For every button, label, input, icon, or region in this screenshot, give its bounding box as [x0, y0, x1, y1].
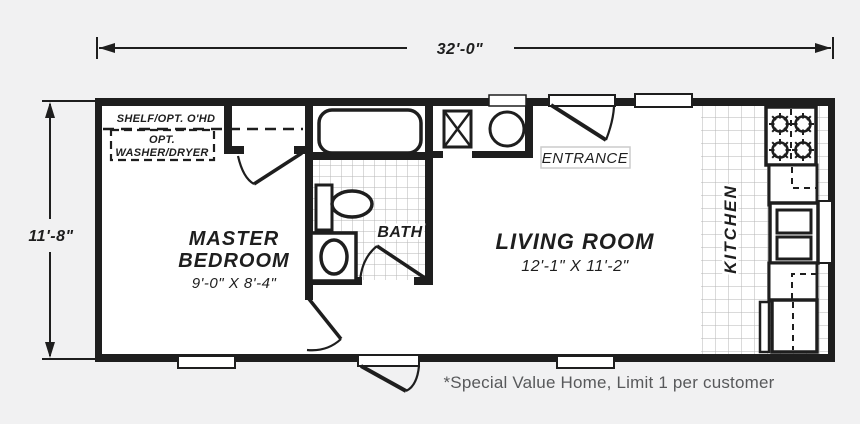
base-cabinet — [772, 300, 817, 352]
living-room-size: 12'-1" X 11'-2" — [521, 258, 629, 275]
appliance-side-panel — [760, 302, 769, 352]
floor-plan: SHELF/OPT. O'HD OPT. WASHER/DRYER MASTER… — [0, 0, 860, 424]
dimension-height: 11'-8" — [28, 101, 95, 359]
dimension-width: 32'-0" — [97, 37, 833, 59]
wall-recess — [818, 201, 832, 263]
wall-segment — [95, 98, 835, 106]
rear-door-leaf — [361, 366, 406, 391]
toilet-bowl — [321, 240, 347, 274]
living-room-label: LIVING ROOM — [496, 229, 655, 254]
master-bedroom-size: 9'-0" X 8'-4" — [192, 275, 277, 292]
washer-dryer-label-line1: OPT. — [149, 134, 175, 146]
arrow-right-icon — [815, 43, 831, 53]
shelf-label: SHELF/OPT. O'HD — [117, 113, 216, 125]
kitchen-appliances — [760, 107, 818, 352]
wall-segment — [433, 151, 443, 158]
wall-segment — [224, 146, 244, 154]
master-bedroom-label-line2: BEDROOM — [178, 250, 290, 272]
bath-label: BATH — [377, 224, 422, 241]
washer-dryer-label-line2: WASHER/DRYER — [115, 147, 208, 159]
floor-plan-drawing: SHELF/OPT. O'HD OPT. WASHER/DRYER MASTER… — [0, 0, 860, 424]
wall-recess — [489, 95, 526, 106]
wall-segment — [525, 98, 533, 158]
rear-door-arc — [406, 366, 419, 391]
sink-bowl — [332, 191, 372, 217]
arrow-down-icon — [45, 342, 55, 358]
refrigerator-door — [777, 210, 811, 233]
water-heater-symbol — [490, 112, 524, 146]
footnote-text: *Special Value Home, Limit 1 per custome… — [443, 373, 774, 392]
arrow-left-icon — [99, 43, 115, 53]
window-symbol — [635, 94, 692, 107]
width-dimension-label: 32'-0" — [437, 41, 483, 58]
refrigerator-door — [777, 237, 811, 259]
wall-segment — [472, 151, 533, 158]
entrance-door-panel — [549, 95, 615, 106]
master-bedroom-label-line1: MASTER — [189, 228, 279, 250]
wall-segment — [425, 98, 433, 285]
kitchen-label: KITCHEN — [721, 184, 740, 274]
window-symbol — [178, 356, 235, 368]
entrance-label: ENTRANCE — [542, 150, 629, 167]
bathtub — [319, 110, 421, 153]
sink-counter — [316, 185, 332, 230]
wall-segment — [224, 98, 232, 154]
window-symbol — [557, 356, 614, 368]
height-dimension-label: 11'-8" — [28, 228, 73, 245]
arrow-up-icon — [45, 102, 55, 118]
rear-door-panel — [358, 355, 419, 366]
wall-segment — [95, 98, 102, 362]
